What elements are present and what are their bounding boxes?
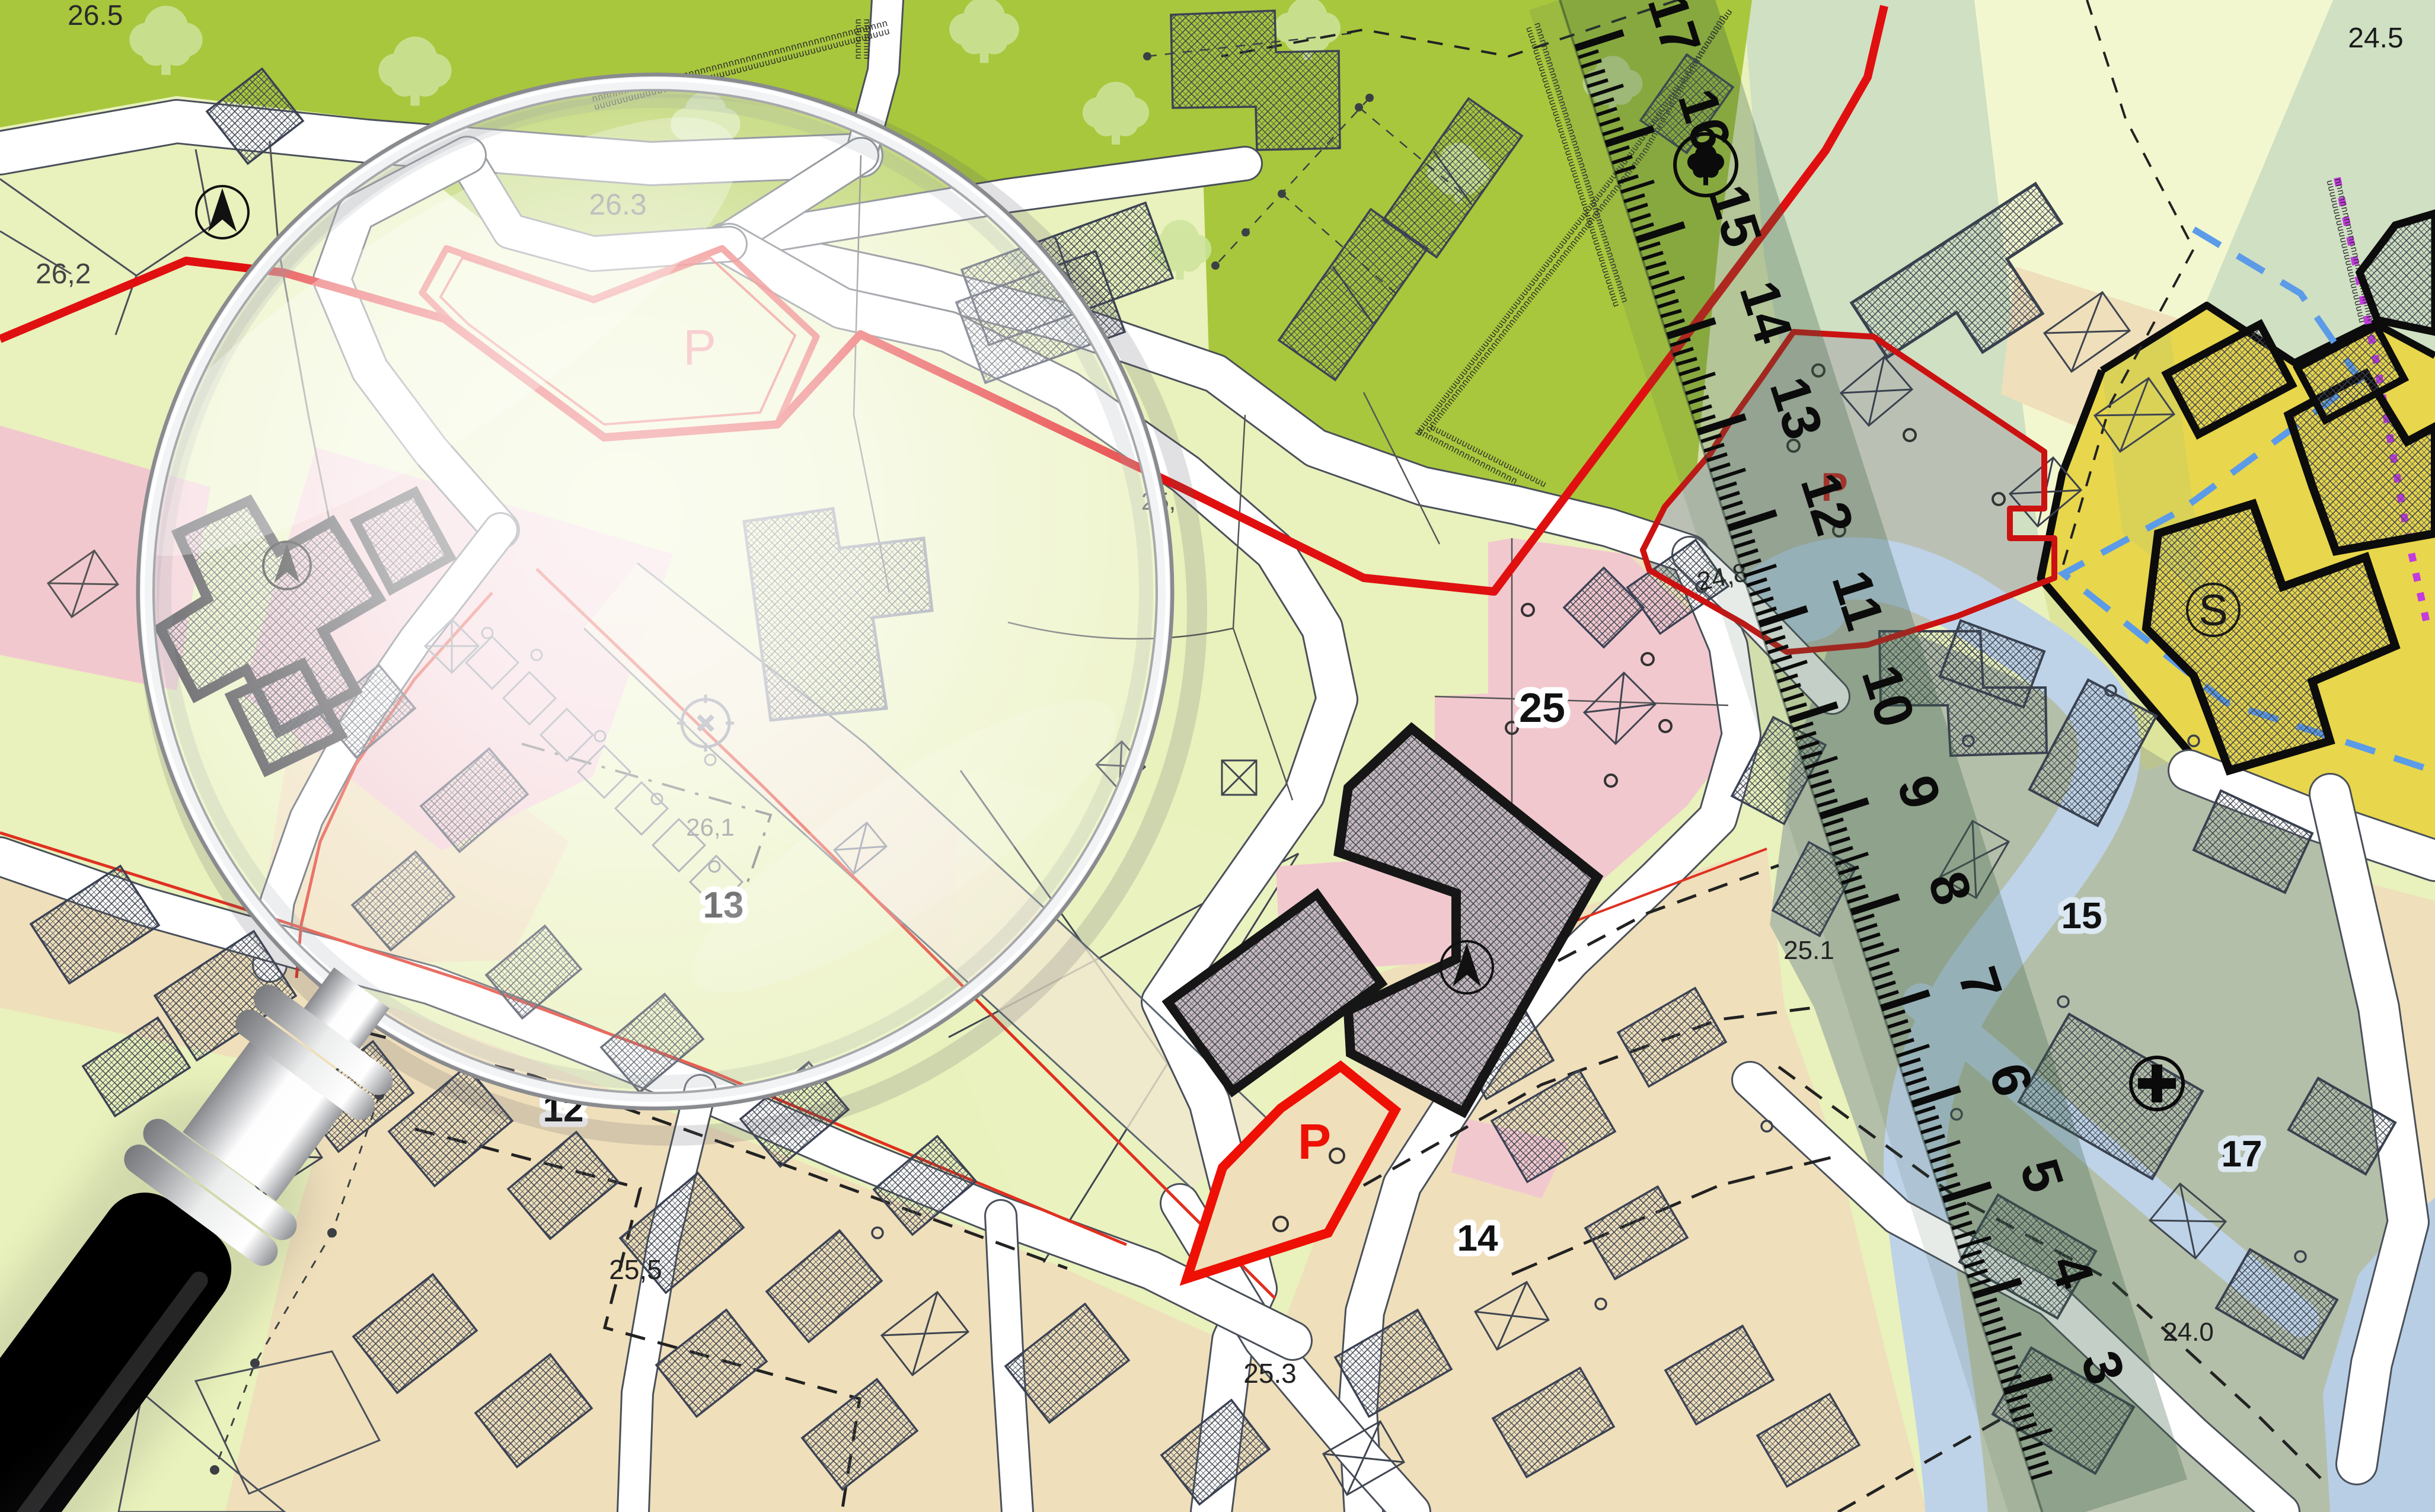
svg-text:26.5: 26.5 (68, 0, 123, 31)
svg-text:S: S (2198, 586, 2227, 635)
svg-text:14: 14 (1457, 1218, 1498, 1259)
svg-text:25: 25 (1519, 685, 1565, 731)
svg-text:25.3: 25.3 (1243, 1358, 1297, 1389)
svg-text:17: 17 (2222, 1134, 2262, 1175)
svg-text:24.5: 24.5 (2348, 23, 2403, 54)
svg-text:24.0: 24.0 (2163, 1318, 2214, 1347)
svg-text:P: P (1298, 1114, 1331, 1169)
svg-text:25,5: 25,5 (609, 1254, 662, 1285)
svg-text:26,2: 26,2 (36, 258, 91, 290)
svg-text:uuuuuuu: uuuuuuu (861, 18, 872, 59)
svg-text:15: 15 (2061, 896, 2102, 936)
